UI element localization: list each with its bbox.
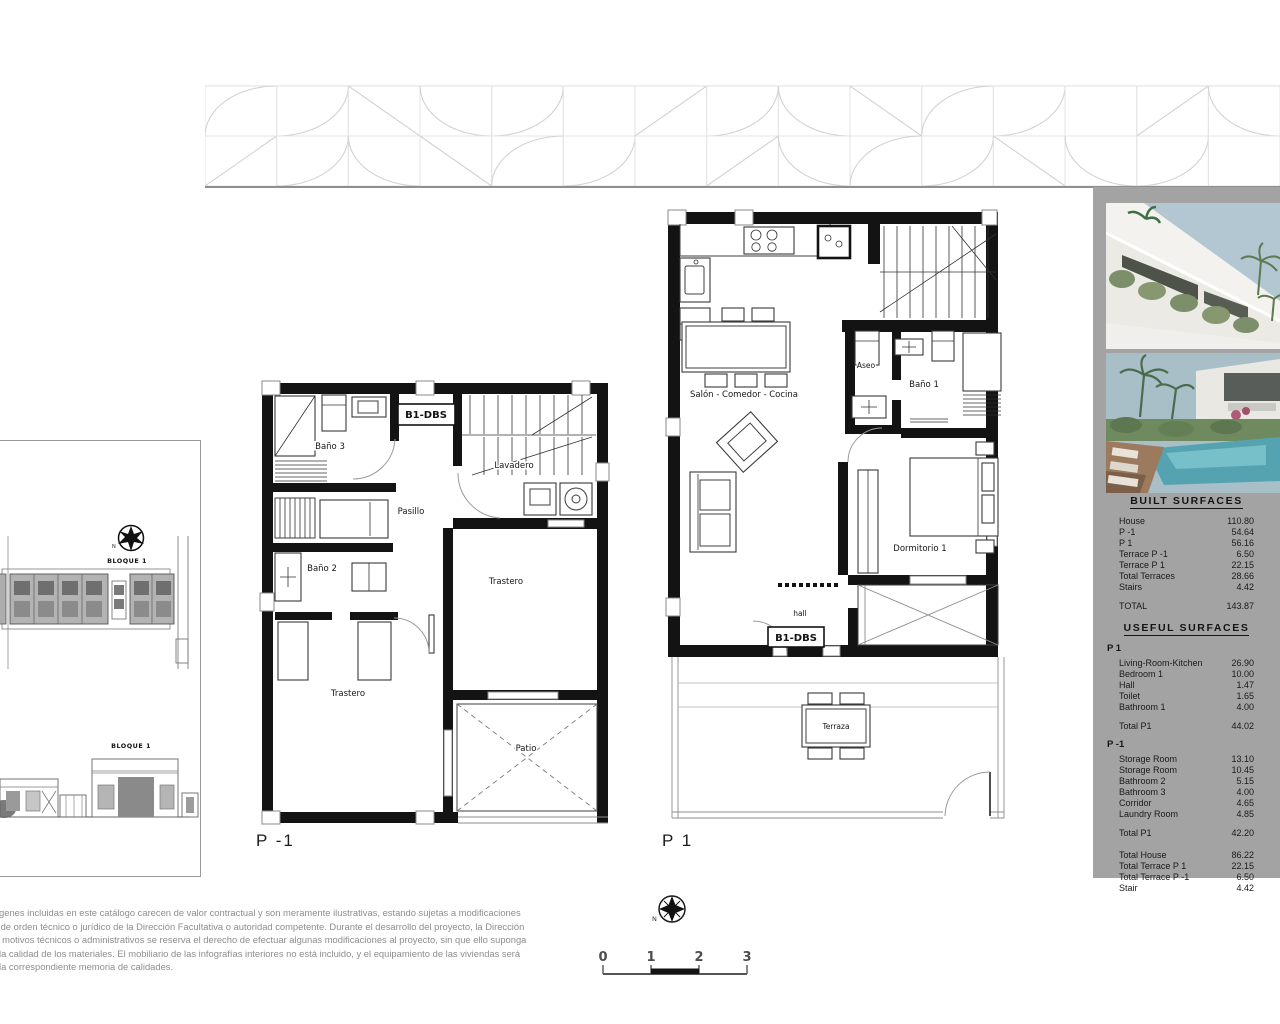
row-value: 6.50 xyxy=(1236,549,1254,559)
total-label: Total P1 xyxy=(1119,828,1152,838)
row-value: 4.85 xyxy=(1236,809,1254,819)
room-label-hall: hall xyxy=(793,609,807,618)
table-row: Total House86.22 xyxy=(1119,850,1254,860)
disclaimer-line: por motivos técnicos o administrativos s… xyxy=(0,933,546,947)
table-row: Storage Room13.10 xyxy=(1119,754,1254,764)
built-surfaces-title: BUILT SURFACES xyxy=(1119,495,1254,507)
row-label: P -1 xyxy=(1119,527,1135,537)
pool-render-illustration xyxy=(1106,353,1280,493)
total-value: 44.02 xyxy=(1231,721,1254,731)
row-value: 56.16 xyxy=(1231,538,1254,548)
row-value: 13.10 xyxy=(1231,754,1254,764)
row-label: Corridor xyxy=(1119,798,1152,808)
north-label: N xyxy=(652,915,657,923)
floor-plan-basement: B1-DBS Baño 3 Lavadero Pasillo Baño 2 Tr… xyxy=(248,375,618,855)
scale-tick-2: 2 xyxy=(694,950,703,965)
row-value: 4.65 xyxy=(1236,798,1254,808)
row-label: Terrace P -1 xyxy=(1119,549,1168,559)
pm1-patio xyxy=(457,704,597,811)
sidebar: BUILT SURFACES House110.80 P -154.64 P 1… xyxy=(1093,187,1280,878)
disclaimer-line: las de orden técnico o jurídico de la Di… xyxy=(0,920,546,934)
p1-terrace xyxy=(672,657,1004,818)
row-label: Total Terrace P 1 xyxy=(1119,861,1186,871)
row-value: 1.65 xyxy=(1236,691,1254,701)
table-row: Toilet1.65 xyxy=(1119,691,1254,701)
north-label: N xyxy=(112,544,116,550)
table-row: P 156.16 xyxy=(1119,538,1254,548)
row-value: 22.15 xyxy=(1231,861,1254,871)
table-row: Bathroom 25.15 xyxy=(1119,776,1254,786)
plan-title-first: P 1 xyxy=(662,831,693,851)
row-label: Toilet xyxy=(1119,691,1140,701)
row-label: Total Terrace P -1 xyxy=(1119,872,1189,882)
scale-bar: 0 1 2 3 xyxy=(592,948,767,987)
row-label: Total House xyxy=(1119,850,1167,860)
table-row: Total Terrace P -16.50 xyxy=(1119,872,1254,882)
row-label: Stairs xyxy=(1119,582,1142,592)
scale-bar-drawing: 0 1 2 3 xyxy=(592,948,767,982)
p1-dotted-strip xyxy=(778,583,838,587)
room-label-dormitorio: Dormitorio 1 xyxy=(893,544,946,554)
room-label-pasillo: Pasillo xyxy=(398,507,425,517)
disclaimer-line: mágenes incluidas en este catálogo carec… xyxy=(0,906,546,920)
pm1-laundry-fixtures xyxy=(524,483,592,515)
room-label-bano1: Baño 1 xyxy=(909,380,939,390)
row-value: 6.50 xyxy=(1236,872,1254,882)
table-row: House110.80 xyxy=(1119,516,1254,526)
useful-p1-total-row: Total P144.02 xyxy=(1119,721,1254,731)
built-total-row: TOTAL143.87 xyxy=(1119,601,1254,611)
row-label: P 1 xyxy=(1119,538,1132,548)
row-label: Stair xyxy=(1119,883,1138,893)
decorative-pattern-band xyxy=(205,85,1280,188)
site-plan-block xyxy=(0,536,188,669)
useful-p1-header: P 1 xyxy=(1107,643,1254,654)
row-label: Storage Room xyxy=(1119,765,1177,775)
table-row: Bathroom 14.00 xyxy=(1119,702,1254,712)
table-row: Total Terrace P 122.15 xyxy=(1119,861,1254,871)
row-value: 4.42 xyxy=(1236,582,1254,592)
useful-pm1-total-row: Total P142.20 xyxy=(1119,828,1254,838)
p1-void-shaft xyxy=(858,585,998,645)
row-label: Bathroom 2 xyxy=(1119,776,1166,786)
legal-disclaimer: mágenes incluidas en este catálogo carec… xyxy=(0,906,546,974)
table-row: P -154.64 xyxy=(1119,527,1254,537)
scale-tick-0: 0 xyxy=(598,950,607,965)
table-row: Bedroom 110.00 xyxy=(1119,669,1254,679)
row-value: 10.00 xyxy=(1231,669,1254,679)
unit-tag-label: B1-DBS xyxy=(405,410,447,421)
row-label: Living-Room-Kitchen xyxy=(1119,658,1203,668)
total-value: 42.20 xyxy=(1231,828,1254,838)
p1-walls xyxy=(668,212,998,657)
table-row: Terrace P 122.15 xyxy=(1119,560,1254,570)
disclaimer-line: en la correspondiente memoria de calidad… xyxy=(0,960,546,974)
useful-summary-block: Total House86.22 Total Terrace P 122.15 … xyxy=(1119,850,1254,893)
p1-stairs xyxy=(880,226,996,318)
compass-icon: N xyxy=(638,893,708,944)
row-value: 4.00 xyxy=(1236,702,1254,712)
row-value: 22.15 xyxy=(1231,560,1254,570)
row-value: 26.90 xyxy=(1231,658,1254,668)
site-elevation-drawing xyxy=(0,759,198,818)
site-key-plan-panel: N BLOQUE 1 BLOQUE 1 xyxy=(0,440,201,877)
row-value: 1.47 xyxy=(1236,680,1254,690)
bloque-label-top: BLOQUE 1 xyxy=(107,557,147,565)
row-label: Bedroom 1 xyxy=(1119,669,1163,679)
table-row: Bathroom 34.00 xyxy=(1119,787,1254,797)
row-value: 86.22 xyxy=(1231,850,1254,860)
scale-tick-1: 1 xyxy=(646,950,655,965)
row-label: Storage Room xyxy=(1119,754,1177,764)
room-label-terraza: Terraza xyxy=(821,722,849,731)
row-value: 4.00 xyxy=(1236,787,1254,797)
table-row: Living-Room-Kitchen26.90 xyxy=(1119,658,1254,668)
table-row: Corridor4.65 xyxy=(1119,798,1254,808)
table-row: Laundry Room4.85 xyxy=(1119,809,1254,819)
useful-pm1-header: P -1 xyxy=(1107,739,1254,750)
row-value: 4.42 xyxy=(1236,883,1254,893)
bloque-label-bottom: BLOQUE 1 xyxy=(111,742,151,750)
table-row: Stair4.42 xyxy=(1119,883,1254,893)
keyplan-compass-icon: N xyxy=(112,526,144,552)
room-label-aseo: Aseo xyxy=(857,361,876,370)
render-photo-pool xyxy=(1106,353,1280,493)
table-row: Hall1.47 xyxy=(1119,680,1254,690)
table-row: Total Terraces28.66 xyxy=(1119,571,1254,581)
room-label-trastero-left: Trastero xyxy=(330,689,365,699)
floor-plan-first: B1-DBS Salón - Comedor - Cocina Aseo Bañ… xyxy=(652,200,1012,870)
pm1-tag: B1-DBS xyxy=(398,404,455,425)
room-label-patio: Patio xyxy=(516,744,537,754)
p1-living-furniture xyxy=(690,412,777,552)
room-label-bano2: Baño 2 xyxy=(307,564,337,574)
room-label-salon: Salón - Comedor - Cocina xyxy=(690,389,798,400)
row-value: 28.66 xyxy=(1231,571,1254,581)
plan-title-basement: P -1 xyxy=(256,831,295,851)
total-value: 143.87 xyxy=(1226,601,1254,611)
site-plan-drawing: N BLOQUE 1 BLOQUE 1 xyxy=(0,441,200,876)
row-value: 5.15 xyxy=(1236,776,1254,786)
row-value: 54.64 xyxy=(1231,527,1254,537)
row-label: Terrace P 1 xyxy=(1119,560,1165,570)
room-label-trastero-right: Trastero xyxy=(488,577,523,587)
p1-aseo-fixtures xyxy=(852,331,886,418)
scale-tick-3: 3 xyxy=(742,950,751,965)
row-label: Hall xyxy=(1119,680,1135,690)
disclaimer-line: en la calidad de los materiales. El mobi… xyxy=(0,947,546,961)
room-label-lavadero: Lavadero xyxy=(494,461,533,471)
row-label: Laundry Room xyxy=(1119,809,1178,819)
north-compass-icon: N xyxy=(638,893,708,939)
row-label: Total Terraces xyxy=(1119,571,1175,581)
row-label: House xyxy=(1119,516,1145,526)
p1-bano1-fixtures xyxy=(895,331,1001,422)
pm1-bathroom3-fixtures xyxy=(275,395,386,481)
surfaces-panel: BUILT SURFACES House110.80 P -154.64 P 1… xyxy=(1093,495,1280,894)
table-row: Terrace P -16.50 xyxy=(1119,549,1254,559)
total-label: TOTAL xyxy=(1119,601,1147,611)
room-label-bano3: Baño 3 xyxy=(315,442,345,452)
exterior-render-illustration xyxy=(1106,203,1280,349)
useful-surfaces-title: USEFUL SURFACES xyxy=(1119,622,1254,634)
row-value: 10.45 xyxy=(1231,765,1254,775)
unit-tag-label: B1-DBS xyxy=(775,633,817,644)
table-row: Storage Room10.45 xyxy=(1119,765,1254,775)
row-label: Bathroom 3 xyxy=(1119,787,1166,797)
pattern-band-svg xyxy=(205,86,1280,186)
table-row: Stairs4.42 xyxy=(1119,582,1254,592)
total-label: Total P1 xyxy=(1119,721,1152,731)
render-photo-exterior xyxy=(1106,203,1280,349)
row-value: 110.80 xyxy=(1227,516,1254,526)
p1-tag: B1-DBS xyxy=(768,627,824,647)
pm1-storage-niches xyxy=(278,622,391,680)
row-label: Bathroom 1 xyxy=(1119,702,1166,712)
